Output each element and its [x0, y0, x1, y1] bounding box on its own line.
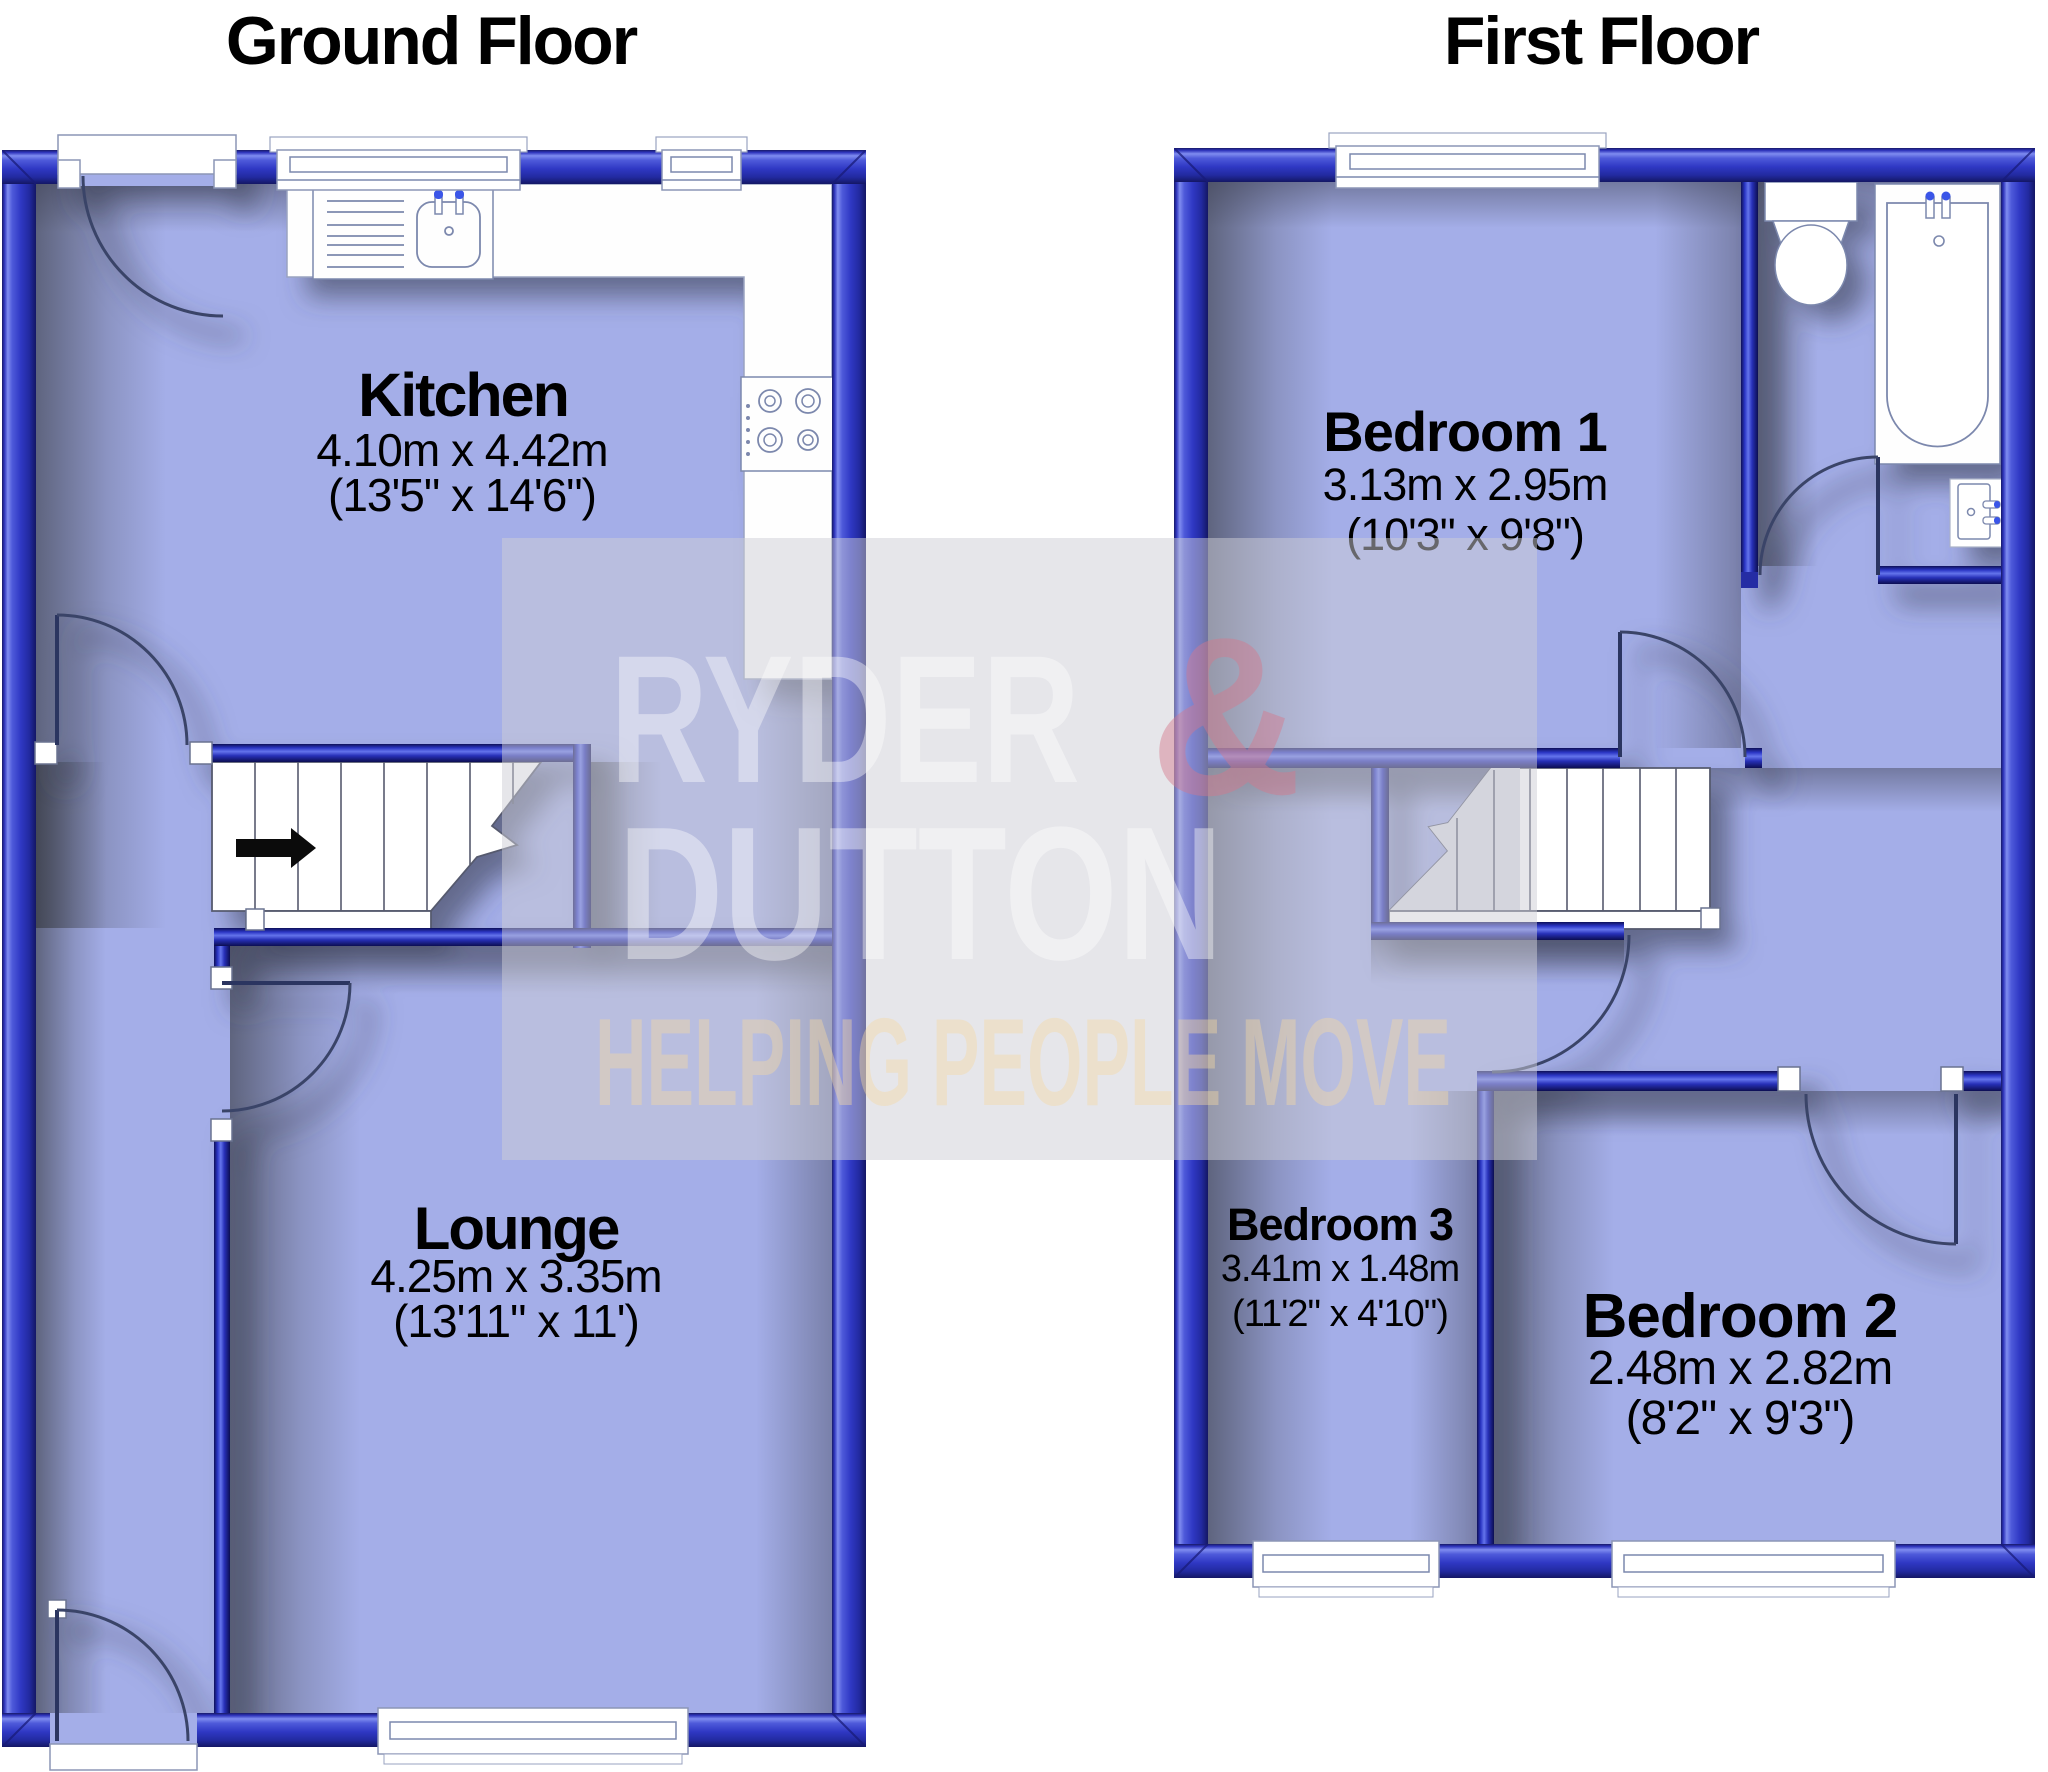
- svg-text:(13'5" x 14'6"): (13'5" x 14'6"): [328, 469, 596, 521]
- svg-text:HELPING PEOPLE MOVE: HELPING PEOPLE MOVE: [595, 994, 1451, 1132]
- svg-text:(8'2" x 9'3"): (8'2" x 9'3"): [1626, 1392, 1855, 1445]
- svg-text:Kitchen: Kitchen: [358, 361, 568, 429]
- svg-text:Bedroom 3: Bedroom 3: [1227, 1199, 1453, 1250]
- svg-text:DUTTON: DUTTON: [618, 788, 1223, 1000]
- svg-text:(11'2" x 4'10"): (11'2" x 4'10"): [1232, 1293, 1448, 1335]
- svg-text:2.48m x 2.82m: 2.48m x 2.82m: [1588, 1342, 1892, 1395]
- svg-text:(13'11" x 11'): (13'11" x 11'): [393, 1295, 639, 1347]
- svg-text:Bedroom 1: Bedroom 1: [1323, 400, 1607, 463]
- svg-text:First Floor: First Floor: [1444, 3, 1760, 79]
- svg-text:3.13m x 2.95m: 3.13m x 2.95m: [1323, 459, 1608, 510]
- svg-text:Ground Floor: Ground Floor: [226, 3, 638, 79]
- svg-text:Bedroom 2: Bedroom 2: [1583, 1282, 1898, 1351]
- svg-text:3.41m x 1.48m: 3.41m x 1.48m: [1221, 1248, 1459, 1290]
